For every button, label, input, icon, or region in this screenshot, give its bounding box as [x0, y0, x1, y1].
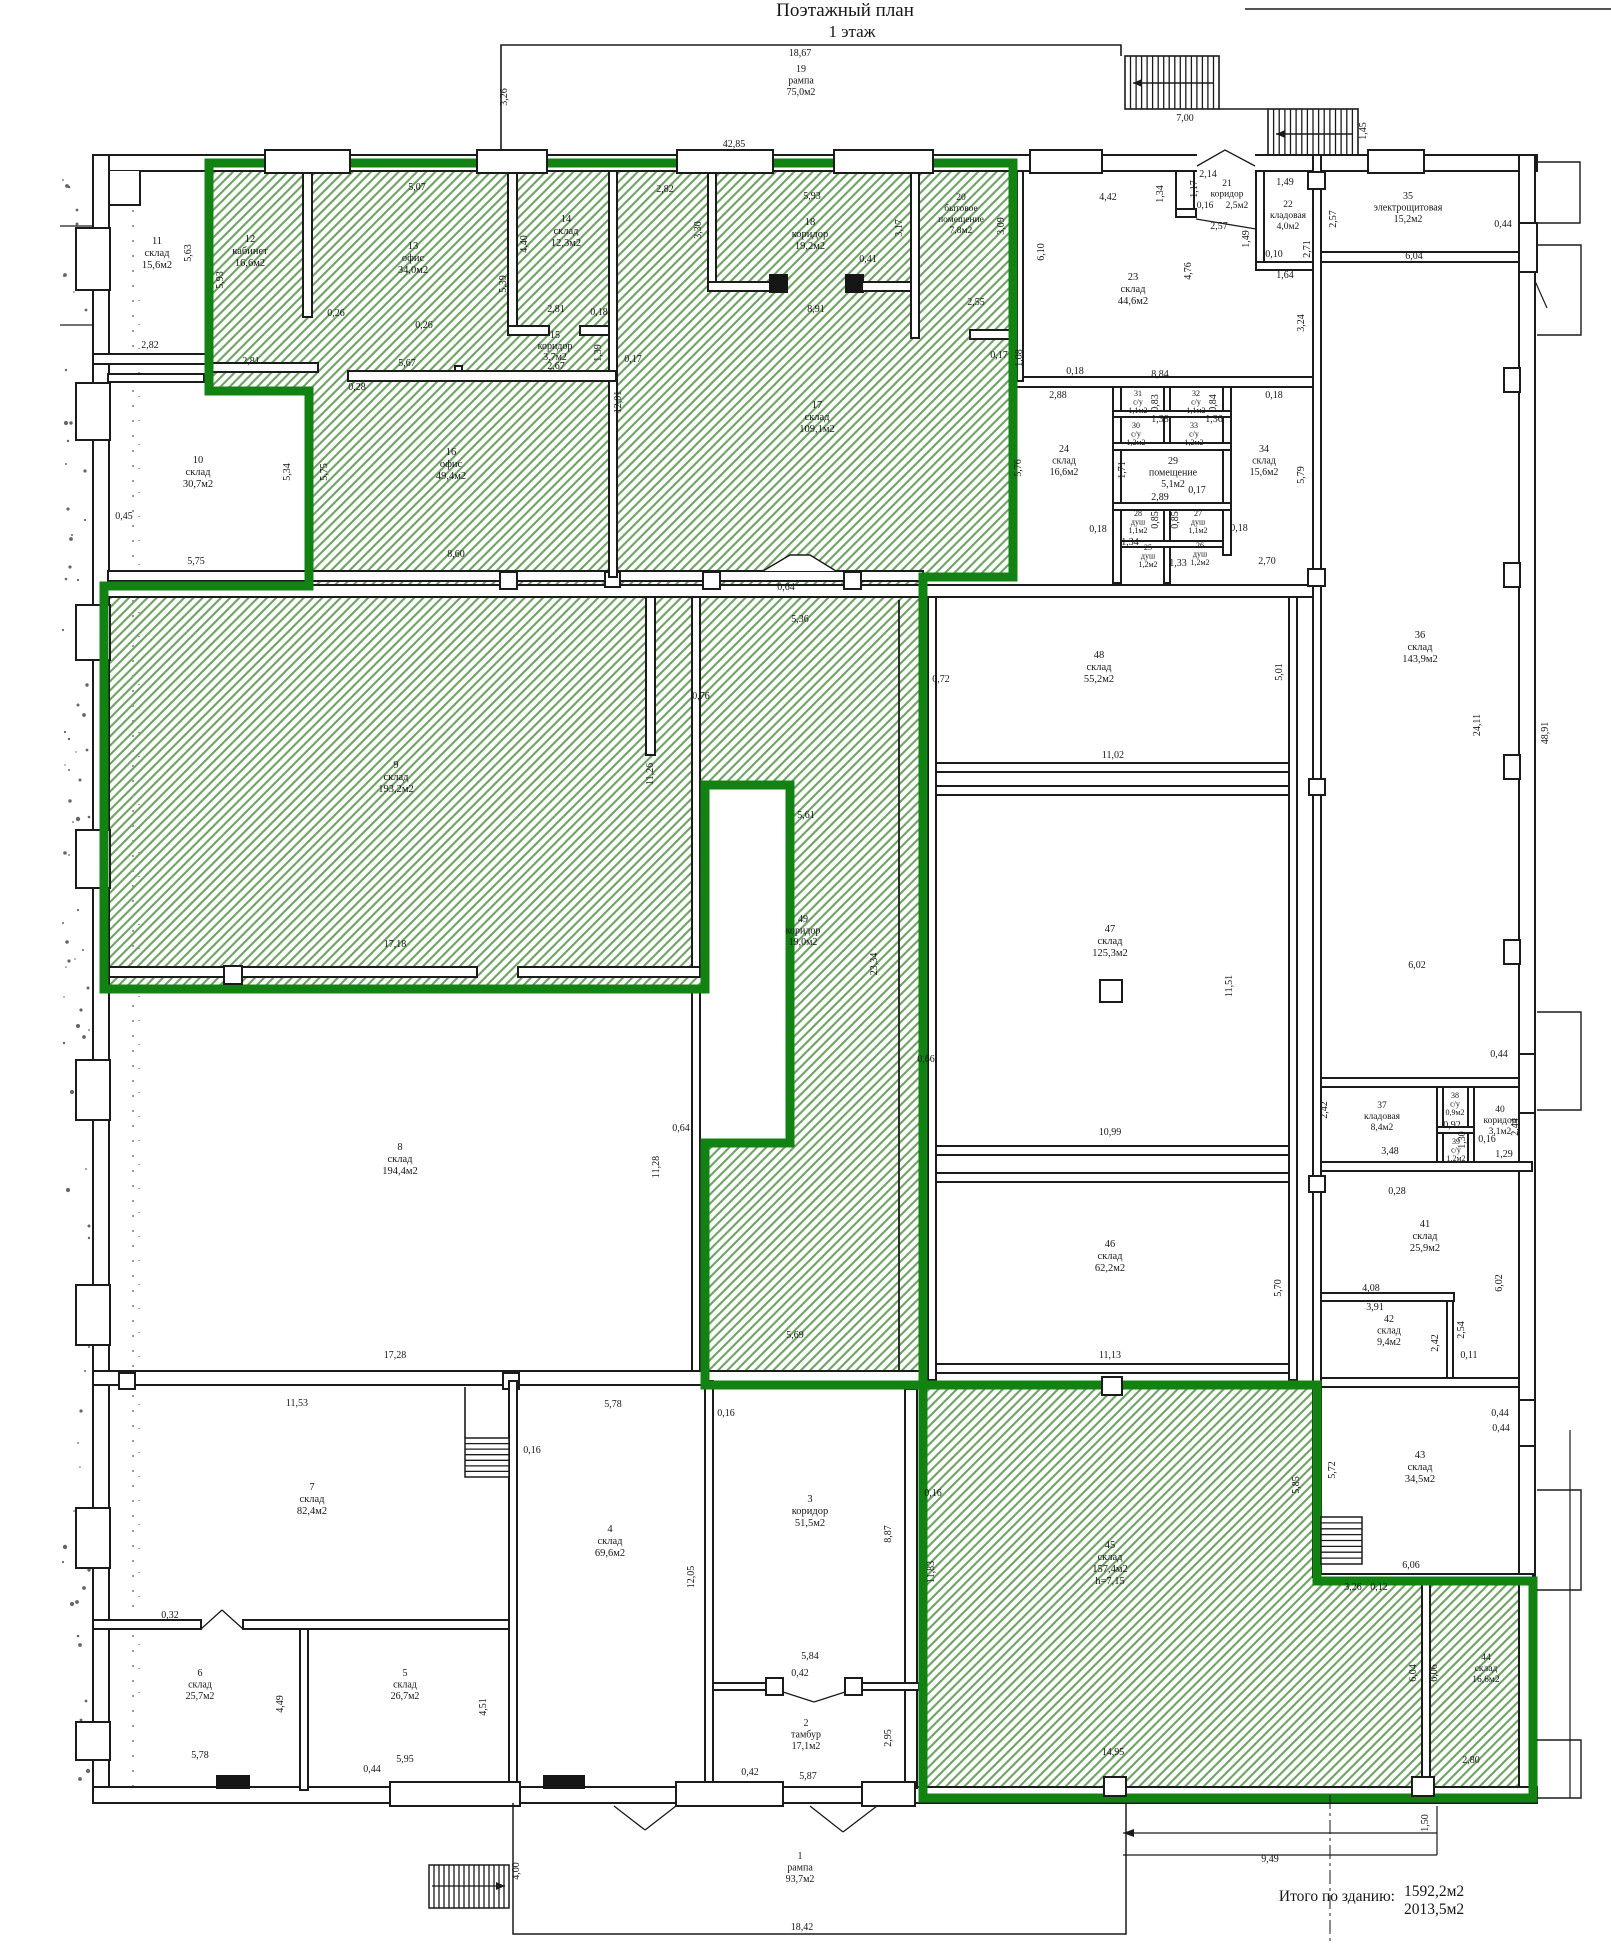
svg-text:18,42: 18,42 [791, 1922, 814, 1933]
svg-text:14: 14 [561, 214, 572, 225]
svg-text:51,5м2: 51,5м2 [795, 1518, 825, 1529]
svg-text:помещение: помещение [1149, 468, 1198, 479]
svg-text:0,85: 0,85 [1170, 511, 1181, 529]
svg-text:рампа: рампа [788, 76, 814, 87]
svg-text:0,41: 0,41 [859, 254, 877, 265]
svg-text:1: 1 [798, 1851, 803, 1862]
svg-text:Итого по зданию:: Итого по зданию: [1279, 1888, 1395, 1905]
svg-text:склад: склад [185, 467, 211, 478]
svg-text:16,6м2: 16,6м2 [1050, 467, 1079, 478]
svg-text:8,84: 8,84 [1151, 369, 1169, 380]
svg-text:4,0м2: 4,0м2 [1277, 222, 1300, 232]
svg-text:тамбур: тамбур [791, 1730, 821, 1741]
svg-text:0,45: 0,45 [115, 511, 133, 522]
svg-text:склад: склад [1097, 936, 1123, 947]
svg-text:склад: склад [1052, 456, 1076, 467]
svg-text:4,40: 4,40 [519, 235, 530, 253]
svg-text:0,44: 0,44 [1490, 1049, 1508, 1060]
svg-text:26,7м2: 26,7м2 [391, 1691, 420, 1702]
svg-text:24: 24 [1059, 444, 1069, 455]
svg-text:5,78: 5,78 [604, 1399, 622, 1410]
svg-text:5,93: 5,93 [803, 191, 821, 202]
svg-text:0,28: 0,28 [1388, 1186, 1406, 1197]
svg-text:4,00: 4,00 [511, 1862, 522, 1880]
svg-text:6,06: 6,06 [1429, 1664, 1440, 1682]
svg-text:1,2м2: 1,2м2 [1138, 560, 1157, 569]
svg-text:0,10: 0,10 [1265, 249, 1283, 260]
svg-text:18,67: 18,67 [789, 48, 812, 59]
svg-text:18: 18 [805, 217, 816, 228]
svg-text:2: 2 [804, 1718, 809, 1729]
svg-text:1,1м2: 1,1м2 [1188, 526, 1207, 535]
svg-text:0,17: 0,17 [624, 354, 642, 365]
svg-text:0,18: 0,18 [590, 307, 608, 318]
svg-text:5,72: 5,72 [1327, 1461, 1338, 1479]
svg-text:11,51: 11,51 [1224, 975, 1235, 997]
svg-text:0,26: 0,26 [415, 320, 433, 331]
svg-text:1,30: 1,30 [1457, 1131, 1468, 1149]
svg-text:35: 35 [1403, 191, 1413, 202]
svg-text:4,08: 4,08 [1362, 1283, 1380, 1294]
svg-text:склад: склад [393, 1680, 417, 1691]
svg-text:0,64: 0,64 [672, 1123, 690, 1134]
svg-text:0,17: 0,17 [990, 350, 1008, 361]
svg-text:6: 6 [198, 1668, 203, 1679]
svg-text:69,6м2: 69,6м2 [595, 1548, 625, 1559]
svg-text:6,06: 6,06 [1402, 1560, 1420, 1571]
svg-text:5,87: 5,87 [799, 1771, 817, 1782]
svg-text:1 этаж: 1 этаж [829, 22, 876, 41]
svg-text:бытовое: бытовое [944, 203, 978, 214]
svg-text:0,85: 0,85 [1150, 511, 1161, 529]
svg-text:16: 16 [446, 447, 457, 458]
svg-text:0,16: 0,16 [717, 1408, 735, 1419]
svg-text:17,28: 17,28 [384, 1350, 407, 1361]
svg-text:0,16: 0,16 [1478, 1134, 1496, 1145]
svg-text:5,78: 5,78 [191, 1750, 209, 1761]
svg-text:75,0м2: 75,0м2 [787, 87, 816, 98]
svg-text:2,57: 2,57 [1210, 221, 1228, 232]
svg-text:1,29: 1,29 [1495, 1149, 1513, 1160]
svg-text:5,79: 5,79 [1296, 466, 1307, 484]
svg-text:6,04: 6,04 [1408, 1664, 1419, 1682]
svg-text:1,49: 1,49 [1276, 177, 1294, 188]
svg-text:55,2м2: 55,2м2 [1084, 674, 1114, 685]
svg-text:48,91: 48,91 [1540, 722, 1551, 745]
svg-text:склад: склад [387, 1154, 413, 1165]
svg-text:1,33: 1,33 [1169, 558, 1187, 569]
svg-text:0,44: 0,44 [363, 1764, 381, 1775]
svg-text:0,66: 0,66 [917, 1054, 935, 1065]
svg-text:1,50: 1,50 [1420, 1814, 1431, 1832]
svg-text:8,91: 8,91 [807, 304, 825, 315]
svg-text:0,44: 0,44 [1491, 1408, 1509, 1419]
svg-text:19,2м2: 19,2м2 [795, 241, 825, 252]
svg-text:6,02: 6,02 [1494, 1274, 1505, 1292]
svg-text:1,2м2: 1,2м2 [1190, 558, 1209, 567]
svg-text:8,60: 8,60 [447, 549, 465, 560]
svg-text:12,3м2: 12,3м2 [551, 238, 581, 249]
svg-text:5,36: 5,36 [791, 614, 809, 625]
svg-text:109,1м2: 109,1м2 [799, 424, 835, 435]
svg-text:склад: склад [1412, 1231, 1438, 1242]
svg-text:h=7,15: h=7,15 [1095, 1576, 1125, 1587]
svg-text:34,5м2: 34,5м2 [1405, 1474, 1435, 1485]
svg-text:7,8м2: 7,8м2 [950, 226, 973, 236]
svg-text:20: 20 [956, 193, 966, 203]
svg-text:125,3м2: 125,3м2 [1092, 948, 1128, 959]
svg-text:0,92: 0,92 [1443, 1120, 1461, 1131]
svg-text:9: 9 [393, 760, 398, 771]
svg-text:47: 47 [1105, 924, 1116, 935]
svg-text:11,26: 11,26 [645, 763, 656, 785]
svg-text:11,02: 11,02 [1102, 750, 1124, 761]
svg-text:5,39: 5,39 [498, 275, 509, 293]
svg-text:0,16: 0,16 [523, 1445, 541, 1456]
svg-text:3,24: 3,24 [1296, 314, 1307, 332]
svg-text:194,4м2: 194,4м2 [382, 1166, 418, 1177]
svg-text:5,84: 5,84 [801, 1651, 819, 1662]
svg-text:склад: склад [1086, 662, 1112, 673]
svg-text:6,10: 6,10 [1036, 243, 1047, 261]
svg-text:22: 22 [1283, 200, 1293, 210]
svg-text:1,49: 1,49 [1241, 230, 1252, 248]
svg-text:1,2м2: 1,2м2 [1184, 438, 1203, 447]
svg-text:6,04: 6,04 [1405, 251, 1423, 262]
svg-text:2,5м2: 2,5м2 [1226, 201, 1249, 211]
svg-text:2,71: 2,71 [1302, 240, 1313, 258]
svg-text:17,18: 17,18 [384, 939, 407, 950]
svg-text:1,1м2: 1,1м2 [1186, 406, 1205, 415]
svg-text:93,7м2: 93,7м2 [786, 1874, 815, 1885]
svg-text:5,67: 5,67 [398, 358, 416, 369]
svg-text:2,81: 2,81 [547, 304, 565, 315]
svg-text:40: 40 [1495, 1105, 1505, 1115]
svg-text:82,4м2: 82,4м2 [297, 1506, 327, 1517]
svg-text:3,26: 3,26 [499, 88, 510, 106]
svg-text:21: 21 [1222, 179, 1232, 189]
svg-text:44,6м2: 44,6м2 [1118, 296, 1148, 307]
svg-text:10: 10 [193, 455, 204, 466]
svg-text:2,95: 2,95 [883, 1729, 894, 1747]
svg-text:1,1м2: 1,1м2 [1128, 406, 1147, 415]
svg-text:5,1м2: 5,1м2 [1161, 479, 1185, 490]
svg-text:29: 29 [1168, 456, 1178, 467]
svg-text:42: 42 [1384, 1314, 1394, 1325]
svg-text:8,87: 8,87 [883, 1525, 894, 1543]
svg-text:Поэтажный план: Поэтажный план [776, 0, 914, 21]
svg-text:2,88: 2,88 [1049, 390, 1067, 401]
svg-text:5,76: 5,76 [1013, 459, 1024, 477]
svg-text:0,16: 0,16 [1197, 201, 1214, 211]
svg-text:3,91: 3,91 [1366, 1302, 1384, 1313]
svg-text:офис: офис [402, 253, 425, 264]
svg-text:склад: склад [1120, 284, 1146, 295]
svg-text:12,01: 12,01 [613, 391, 624, 414]
svg-text:рампа: рампа [787, 1863, 813, 1874]
svg-text:3: 3 [807, 1494, 812, 1505]
svg-text:2,70: 2,70 [1258, 556, 1276, 567]
svg-text:1,08: 1,08 [1014, 349, 1025, 367]
svg-text:25,7м2: 25,7м2 [186, 1691, 215, 1702]
svg-text:37: 37 [1377, 1101, 1387, 1111]
svg-text:5,70: 5,70 [1273, 1279, 1284, 1297]
svg-text:склад: склад [1097, 1251, 1123, 1262]
svg-text:46: 46 [1105, 1239, 1116, 1250]
svg-text:5,93: 5,93 [215, 271, 226, 289]
svg-text:5,95: 5,95 [396, 1754, 414, 1765]
svg-text:15,6м2: 15,6м2 [1250, 467, 1279, 478]
svg-text:4: 4 [607, 1524, 613, 1535]
svg-text:2,89: 2,89 [1151, 492, 1169, 503]
svg-text:2,82: 2,82 [141, 340, 159, 351]
svg-text:1,64: 1,64 [1276, 270, 1294, 281]
svg-text:11,83: 11,83 [926, 1561, 937, 1583]
svg-text:3,09: 3,09 [996, 217, 1007, 235]
svg-text:2,44: 2,44 [1510, 1118, 1521, 1136]
svg-text:1,38: 1,38 [1151, 414, 1169, 425]
svg-text:склад: склад [144, 248, 170, 259]
svg-text:1,36: 1,36 [1205, 414, 1223, 425]
svg-text:8,4м2: 8,4м2 [1371, 1123, 1394, 1133]
svg-text:9,4м2: 9,4м2 [1377, 1337, 1401, 1348]
svg-text:склад: склад [188, 1680, 212, 1691]
svg-text:0,12: 0,12 [1370, 1582, 1388, 1593]
svg-text:0,11: 0,11 [1460, 1350, 1477, 1361]
svg-text:16,6м2: 16,6м2 [1472, 1675, 1500, 1685]
svg-text:1,34: 1,34 [1121, 537, 1139, 548]
svg-text:17: 17 [812, 400, 823, 411]
svg-text:1,1м2: 1,1м2 [1128, 526, 1147, 535]
svg-text:6,02: 6,02 [1408, 960, 1426, 971]
svg-text:5,85: 5,85 [1291, 1476, 1302, 1494]
svg-text:1,2м2: 1,2м2 [1446, 1154, 1465, 1163]
svg-text:5,61: 5,61 [797, 810, 815, 821]
svg-text:5: 5 [403, 1668, 408, 1679]
svg-text:3,48: 3,48 [1381, 1146, 1399, 1157]
svg-text:2,81: 2,81 [242, 356, 260, 367]
svg-text:15,2м2: 15,2м2 [1394, 214, 1423, 225]
svg-text:17,1м2: 17,1м2 [792, 1741, 821, 1752]
svg-text:склад: склад [1377, 1326, 1401, 1337]
svg-text:0,26: 0,26 [327, 308, 345, 319]
svg-text:1,2м2: 1,2м2 [1126, 438, 1145, 447]
svg-text:0,72: 0,72 [932, 674, 950, 685]
svg-text:36: 36 [1415, 630, 1426, 641]
svg-text:1,17: 1,17 [1189, 180, 1200, 198]
svg-text:5,07: 5,07 [408, 182, 426, 193]
svg-text:23: 23 [1128, 272, 1139, 283]
svg-text:склад: склад [1475, 1664, 1498, 1674]
svg-text:0,83: 0,83 [1150, 394, 1161, 412]
svg-text:45: 45 [1105, 1540, 1116, 1551]
svg-text:157,4м2: 157,4м2 [1092, 1564, 1128, 1575]
svg-text:12,05: 12,05 [686, 1566, 697, 1589]
svg-text:3,30: 3,30 [693, 221, 704, 239]
svg-text:5,69: 5,69 [786, 1330, 804, 1341]
svg-text:11,53: 11,53 [286, 1398, 308, 1409]
svg-text:11,13: 11,13 [1099, 1350, 1121, 1361]
svg-text:склад: склад [804, 412, 830, 423]
svg-text:0,64: 0,64 [777, 582, 795, 593]
svg-text:12: 12 [245, 234, 256, 245]
svg-text:23,34: 23,34 [869, 953, 880, 976]
svg-text:30,7м2: 30,7м2 [183, 479, 213, 490]
svg-text:0,18: 0,18 [1066, 366, 1084, 377]
svg-text:49,4м2: 49,4м2 [436, 471, 466, 482]
svg-text:коридор: коридор [792, 229, 829, 240]
svg-text:5,01: 5,01 [1274, 663, 1285, 681]
svg-text:62,2м2: 62,2м2 [1095, 1263, 1125, 1274]
svg-text:11: 11 [152, 236, 162, 247]
svg-text:0,18: 0,18 [1230, 523, 1248, 534]
svg-text:0,84: 0,84 [1208, 394, 1219, 412]
svg-text:2,67: 2,67 [547, 361, 565, 372]
svg-text:16,6м2: 16,6м2 [235, 258, 265, 269]
svg-text:44: 44 [1481, 1653, 1491, 1663]
svg-text:42,85: 42,85 [723, 139, 746, 150]
svg-text:склад: склад [383, 772, 409, 783]
svg-text:4,76: 4,76 [1183, 262, 1194, 280]
svg-text:19,0м2: 19,0м2 [789, 937, 818, 948]
svg-text:электрощитовая: электрощитовая [1374, 203, 1443, 214]
svg-text:8: 8 [397, 1142, 402, 1153]
svg-text:3,26: 3,26 [1344, 1582, 1362, 1593]
svg-text:4,49: 4,49 [275, 1695, 286, 1713]
svg-text:коридор: коридор [792, 1506, 829, 1517]
svg-text:34: 34 [1259, 444, 1269, 455]
svg-text:0,76: 0,76 [692, 691, 710, 702]
svg-text:1,34: 1,34 [1155, 185, 1166, 203]
svg-text:43: 43 [1415, 1450, 1426, 1461]
svg-text:9,49: 9,49 [1261, 1854, 1279, 1865]
svg-text:2,42: 2,42 [1319, 1101, 1330, 1119]
svg-text:0,18: 0,18 [1089, 524, 1107, 535]
svg-text:0,18: 0,18 [1265, 390, 1283, 401]
svg-text:0,28: 0,28 [348, 382, 366, 393]
svg-text:5,75: 5,75 [187, 556, 205, 567]
svg-text:офис: офис [440, 459, 463, 470]
svg-text:2013,5м2: 2013,5м2 [1404, 1901, 1464, 1918]
svg-text:склад: склад [1252, 456, 1276, 467]
svg-text:34,0м2: 34,0м2 [398, 265, 428, 276]
svg-text:коридор: коридор [1210, 190, 1243, 200]
svg-text:2,55: 2,55 [967, 297, 985, 308]
svg-text:0,44: 0,44 [1492, 1423, 1510, 1434]
svg-text:помещение: помещение [938, 215, 984, 225]
svg-text:10,99: 10,99 [1099, 1127, 1122, 1138]
svg-text:0,32: 0,32 [161, 1610, 179, 1621]
svg-text:4,42: 4,42 [1099, 192, 1117, 203]
svg-text:склад: склад [553, 226, 579, 237]
svg-text:кабинет: кабинет [232, 246, 268, 257]
svg-text:19: 19 [796, 64, 806, 75]
svg-text:2,42: 2,42 [1430, 1334, 1441, 1352]
svg-text:кладовая: кладовая [1270, 211, 1307, 221]
svg-text:коридор: коридор [538, 341, 573, 352]
svg-text:4,51: 4,51 [478, 1698, 489, 1716]
svg-text:41: 41 [1420, 1219, 1431, 1230]
svg-text:7: 7 [309, 1482, 314, 1493]
svg-text:13: 13 [408, 241, 419, 252]
svg-text:15: 15 [550, 330, 560, 341]
svg-text:24,11: 24,11 [1472, 714, 1483, 736]
svg-text:0,16: 0,16 [924, 1488, 942, 1499]
svg-text:7,00: 7,00 [1176, 113, 1194, 124]
svg-text:5,63: 5,63 [183, 244, 194, 262]
svg-text:3,17: 3,17 [894, 219, 905, 237]
svg-text:0,44: 0,44 [1494, 219, 1512, 230]
svg-text:0,9м2: 0,9м2 [1445, 1108, 1464, 1117]
svg-text:склад: склад [299, 1494, 325, 1505]
svg-text:193,2м2: 193,2м2 [378, 784, 414, 795]
svg-text:2,54: 2,54 [1456, 1321, 1467, 1339]
svg-text:15,6м2: 15,6м2 [142, 260, 172, 271]
svg-text:2,80: 2,80 [1462, 1755, 1480, 1766]
svg-text:25,9м2: 25,9м2 [1410, 1243, 1440, 1254]
svg-text:1,71: 1,71 [1117, 461, 1128, 479]
svg-text:0,17: 0,17 [1188, 485, 1206, 496]
svg-text:2,14: 2,14 [1199, 169, 1217, 180]
svg-text:0,42: 0,42 [791, 1668, 809, 1679]
svg-text:склад: склад [1407, 642, 1433, 653]
svg-text:48: 48 [1094, 650, 1105, 661]
svg-text:кладовая: кладовая [1364, 1112, 1401, 1122]
svg-text:1592,2м2: 1592,2м2 [1404, 1883, 1464, 1900]
svg-text:2,82: 2,82 [656, 184, 674, 195]
svg-text:2,57: 2,57 [1328, 210, 1339, 228]
svg-text:49: 49 [798, 914, 808, 925]
svg-text:143,9м2: 143,9м2 [1402, 654, 1438, 665]
svg-text:1,39: 1,39 [593, 344, 604, 362]
svg-text:1,45: 1,45 [1358, 122, 1369, 140]
svg-text:0,42: 0,42 [741, 1767, 759, 1778]
svg-text:склад: склад [1407, 1462, 1433, 1473]
svg-text:коридор: коридор [786, 926, 821, 937]
svg-text:5,75: 5,75 [319, 463, 330, 481]
svg-text:склад: склад [597, 1536, 623, 1547]
svg-text:11,28: 11,28 [651, 1156, 662, 1178]
svg-text:склад: склад [1097, 1552, 1123, 1563]
svg-text:14,95: 14,95 [1102, 1747, 1125, 1758]
svg-text:5,34: 5,34 [282, 463, 293, 481]
